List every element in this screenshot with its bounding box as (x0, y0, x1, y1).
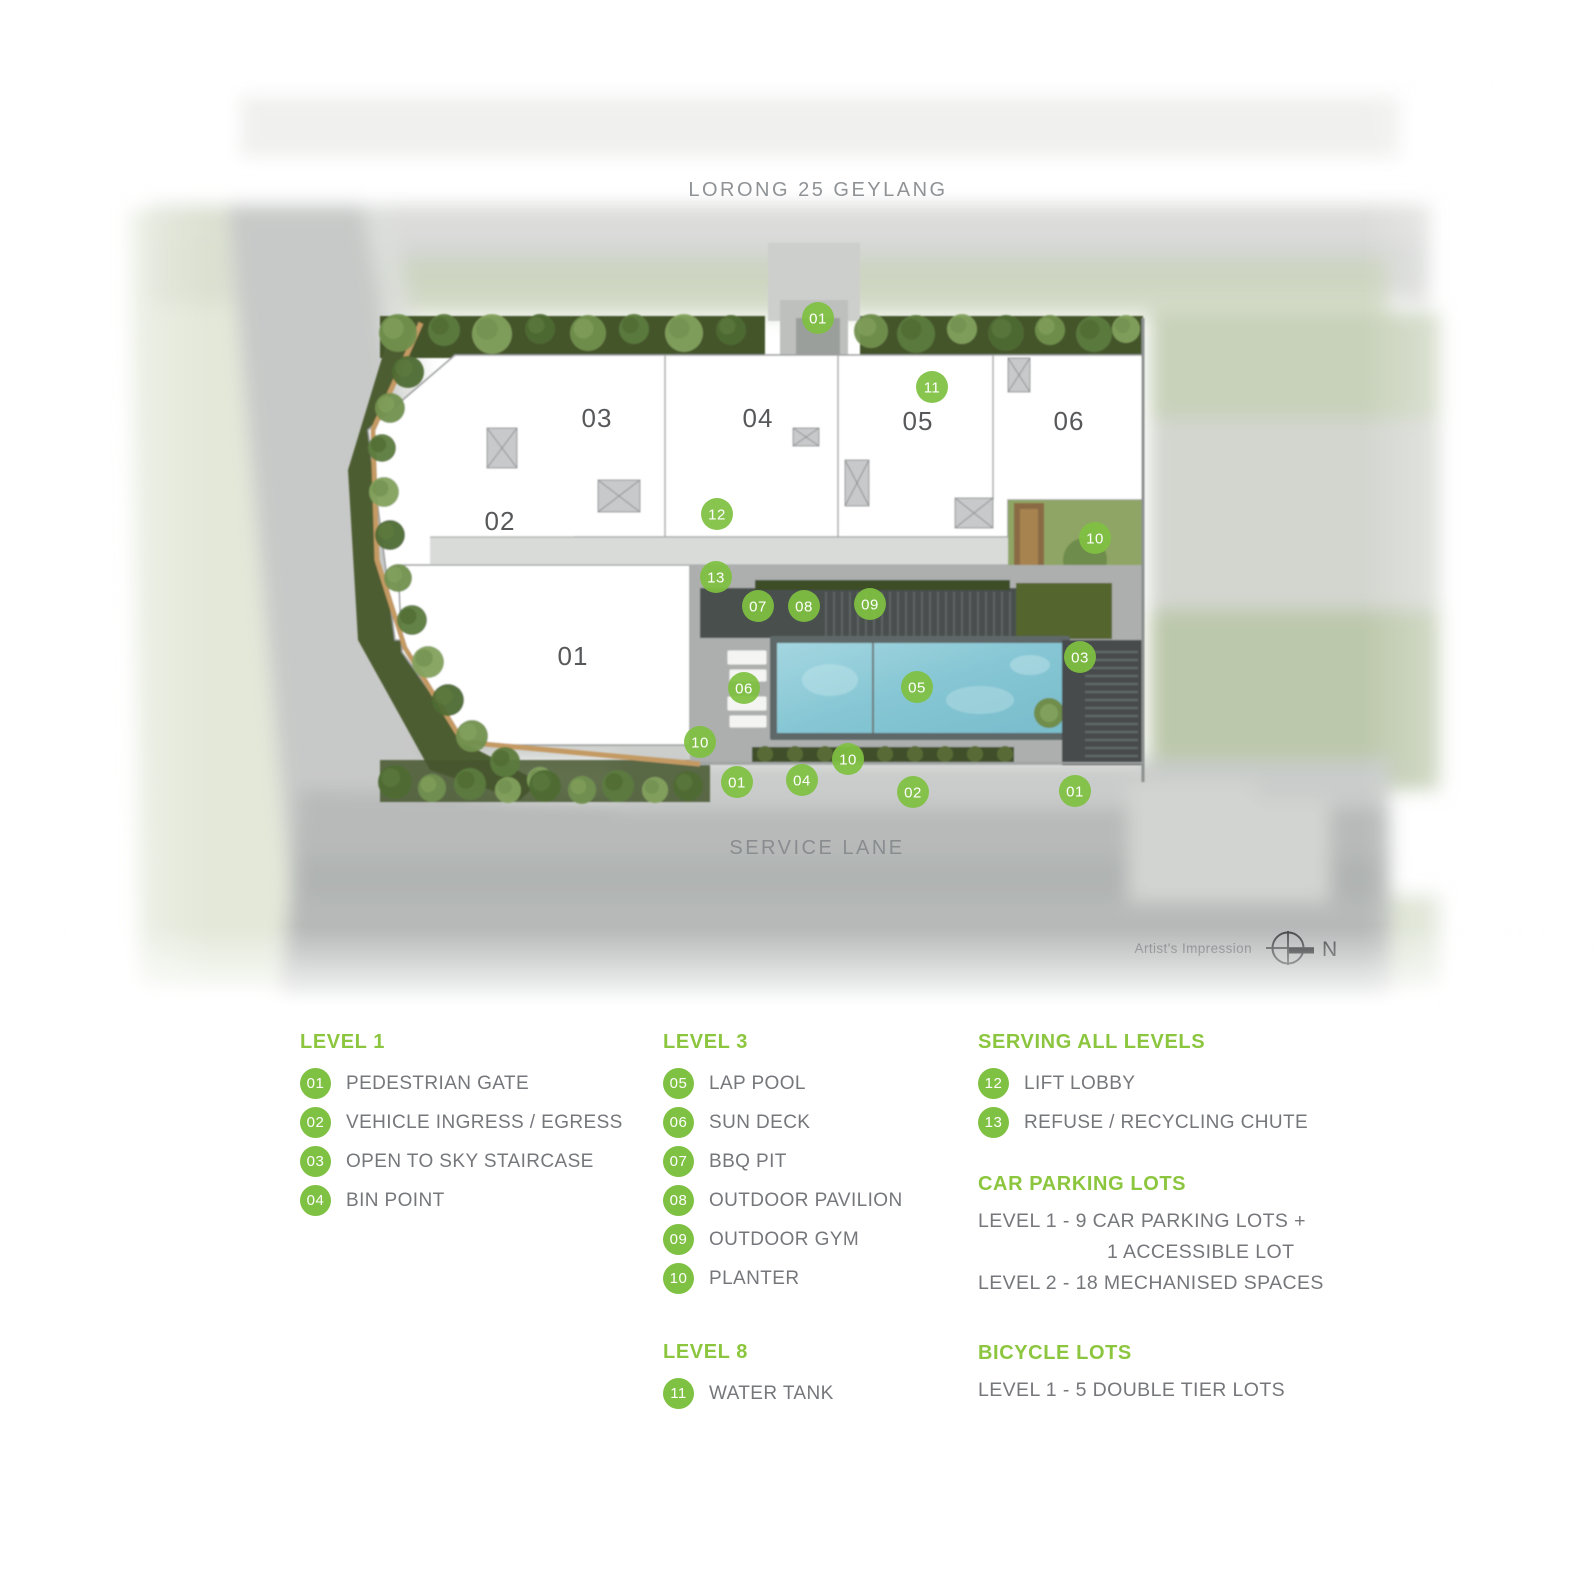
pool-ripple (946, 686, 1014, 714)
shrub (787, 746, 803, 762)
tree-highlight (415, 649, 433, 667)
tree-highlight (431, 317, 449, 335)
legend-item: 08OUTDOOR PAVILION (663, 1181, 1003, 1220)
building-label: 02 (485, 506, 516, 536)
site-plan-page: LORONG 25 GEYLANG SERVICE LANE 010203040… (0, 0, 1595, 1594)
legend-column-level-3-8: LEVEL 305LAP POOL06SUN DECK07BBQ PIT08OU… (663, 1030, 1003, 1413)
tree-highlight (992, 319, 1012, 339)
plan-marker-number: 04 (793, 773, 811, 790)
legend-item-number-badge: 10 (663, 1263, 694, 1294)
plan-marker-number: 01 (809, 311, 827, 328)
tree-highlight (421, 777, 436, 792)
legend-item-label: LAP POOL (709, 1073, 806, 1095)
legend-section-title: SERVING ALL LEVELS (978, 1030, 1318, 1054)
shrub (937, 746, 953, 762)
legend-section-title: CAR PARKING LOTS (978, 1172, 1318, 1196)
plan-marker-number: 06 (735, 681, 753, 698)
plan-marker-number: 07 (749, 599, 767, 616)
shrub (877, 746, 893, 762)
shrub (907, 746, 923, 762)
sun-lounger (727, 650, 767, 665)
planter-shrubs (757, 746, 1013, 762)
tree-highlight (400, 608, 417, 625)
plan-marker-number: 01 (1066, 784, 1084, 801)
tree-highlight (372, 480, 389, 497)
tree-highlight (719, 318, 736, 335)
tree-highlight (387, 567, 402, 582)
tree-highlight (498, 780, 512, 794)
tree-highlight (574, 319, 594, 339)
tree-highlight (378, 523, 395, 540)
building-label: 01 (558, 641, 589, 671)
legend-item-number-badge: 02 (300, 1107, 331, 1138)
legend-item-label: PLANTER (709, 1268, 799, 1290)
site-details (348, 243, 1143, 804)
plan-marker-number: 10 (839, 752, 857, 769)
deck-shrub-strip (755, 580, 1010, 590)
legend-item: 02VEHICLE INGRESS / EGRESS (300, 1103, 640, 1142)
plan-marker-number: 08 (795, 599, 813, 616)
legend-column-level-1: LEVEL 101PEDESTRIAN GATE02VEHICLE INGRES… (300, 1030, 640, 1220)
pool-ripple (802, 664, 858, 696)
plan-marker-number: 12 (708, 507, 726, 524)
legend-text-line: 1 ACCESSIBLE LOT (978, 1237, 1318, 1268)
shrub (967, 746, 983, 762)
legend-item-label: VEHICLE INGRESS / EGRESS (346, 1112, 623, 1134)
legend-section-title: LEVEL 3 (663, 1030, 1003, 1054)
site-plan-canvas: LORONG 25 GEYLANG SERVICE LANE 010203040… (0, 0, 1595, 1010)
legend-item-label: WATER TANK (709, 1383, 834, 1405)
legend-item-label: SUN DECK (709, 1112, 810, 1134)
legend-item-label: OUTDOOR GYM (709, 1229, 859, 1251)
legend-text-line: LEVEL 1 - 9 CAR PARKING LOTS + (978, 1206, 1318, 1237)
legend-item-label: OPEN TO SKY STAIRCASE (346, 1151, 594, 1173)
plan-marker-number: 03 (1071, 650, 1089, 667)
legend-text-line: LEVEL 2 - 18 MECHANISED SPACES (978, 1268, 1318, 1299)
legend-text-line: LEVEL 1 - 5 DOUBLE TIER LOTS (978, 1375, 1318, 1406)
tree-highlight (571, 779, 586, 794)
tree-highlight (857, 317, 876, 336)
plan-marker-number: 13 (707, 570, 725, 587)
poolside-tree-inner (1040, 704, 1058, 722)
tree-highlight (622, 317, 639, 334)
legend-item: 05LAP POOL (663, 1064, 1003, 1103)
tree-highlight (901, 319, 922, 340)
plan-marker-number: 01 (728, 775, 746, 792)
pool-ripple (1010, 655, 1050, 675)
legend-item: 09OUTDOOR GYM (663, 1220, 1003, 1259)
legend-section-title: BICYCLE LOTS (978, 1341, 1318, 1365)
tree-highlight (1038, 318, 1055, 335)
building-label: 03 (582, 403, 613, 433)
legend-section-title: LEVEL 1 (300, 1030, 640, 1054)
legend-column-all-levels: SERVING ALL LEVELS12LIFT LOBBY13REFUSE /… (978, 1030, 1318, 1406)
legend-item: 13REFUSE / RECYCLING CHUTE (978, 1103, 1318, 1142)
legend-item-label: OUTDOOR PAVILION (709, 1190, 903, 1212)
legend-item-label: PEDESTRIAN GATE (346, 1073, 529, 1095)
deck-shrub-block (1016, 583, 1112, 639)
legend-item-number-badge: 12 (978, 1068, 1009, 1099)
road-extension-right (1128, 782, 1330, 902)
shrub (997, 746, 1013, 762)
tree-highlight (457, 771, 475, 789)
plan-marker-number: 09 (861, 597, 879, 614)
legend-item: 11WATER TANK (663, 1374, 1003, 1413)
legend-section-title: LEVEL 8 (663, 1340, 1003, 1364)
corridor (430, 537, 1008, 565)
legend-item-label: BIN POINT (346, 1190, 445, 1212)
legend-item-label: REFUSE / RECYCLING CHUTE (1024, 1112, 1308, 1134)
tree-highlight (378, 396, 395, 413)
legend-item-number-badge: 05 (663, 1068, 694, 1099)
legend-item-number-badge: 08 (663, 1185, 694, 1216)
road-label-bottom: SERVICE LANE (729, 837, 904, 859)
tree-highlight (950, 317, 967, 334)
shrub (817, 746, 833, 762)
legend-item: 12LIFT LOBBY (978, 1064, 1318, 1103)
tree-highlight (676, 774, 693, 791)
tree-highlight (493, 750, 510, 767)
building-label: 06 (1054, 406, 1085, 436)
building-label: 05 (903, 406, 934, 436)
shrub (757, 746, 773, 762)
plan-marker-number: 10 (1086, 531, 1104, 548)
plan-marker-number: 11 (924, 380, 941, 397)
tree-highlight (528, 317, 545, 334)
legend-item-number-badge: 01 (300, 1068, 331, 1099)
tree-highlight (645, 780, 659, 794)
plan-marker-number: 05 (908, 680, 926, 697)
legend: LEVEL 101PEDESTRIAN GATE02VEHICLE INGRES… (0, 1010, 1595, 1594)
legend-item: 03OPEN TO SKY STAIRCASE (300, 1142, 640, 1181)
legend-item-number-badge: 04 (300, 1185, 331, 1216)
legend-item-label: BBQ PIT (709, 1151, 787, 1173)
tree-highlight (1115, 318, 1130, 333)
legend-item-number-badge: 13 (978, 1107, 1009, 1138)
tree-highlight (381, 768, 400, 787)
legend-item: 07BBQ PIT (663, 1142, 1003, 1181)
legend-item-label: LIFT LOBBY (1024, 1073, 1135, 1095)
plan-marker-number: 10 (691, 735, 709, 752)
tree-highlight (435, 687, 453, 705)
legend-item-number-badge: 03 (300, 1146, 331, 1177)
tree-highlight (1080, 320, 1100, 340)
road-label-top: LORONG 25 GEYLANG (688, 179, 947, 201)
legend-item-number-badge: 11 (663, 1378, 694, 1409)
tree-highlight (605, 773, 623, 791)
legend-item-number-badge: 06 (663, 1107, 694, 1138)
tree-highlight (532, 773, 550, 791)
tree-highlight (476, 318, 498, 340)
tree-highlight (395, 359, 413, 377)
tree-highlight (383, 318, 404, 339)
legend-item: 01PEDESTRIAN GATE (300, 1064, 640, 1103)
building-label: 04 (743, 403, 774, 433)
legend-item: 10PLANTER (663, 1259, 1003, 1298)
legend-item-number-badge: 09 (663, 1224, 694, 1255)
tree-highlight (459, 723, 477, 741)
tree-highlight (371, 437, 386, 452)
legend-item: 04BIN POINT (300, 1181, 640, 1220)
plan-marker-number: 02 (904, 785, 922, 802)
sun-lounger (729, 715, 767, 728)
tree-highlight (669, 318, 690, 339)
legend-item-number-badge: 07 (663, 1146, 694, 1177)
legend-item: 06SUN DECK (663, 1103, 1003, 1142)
